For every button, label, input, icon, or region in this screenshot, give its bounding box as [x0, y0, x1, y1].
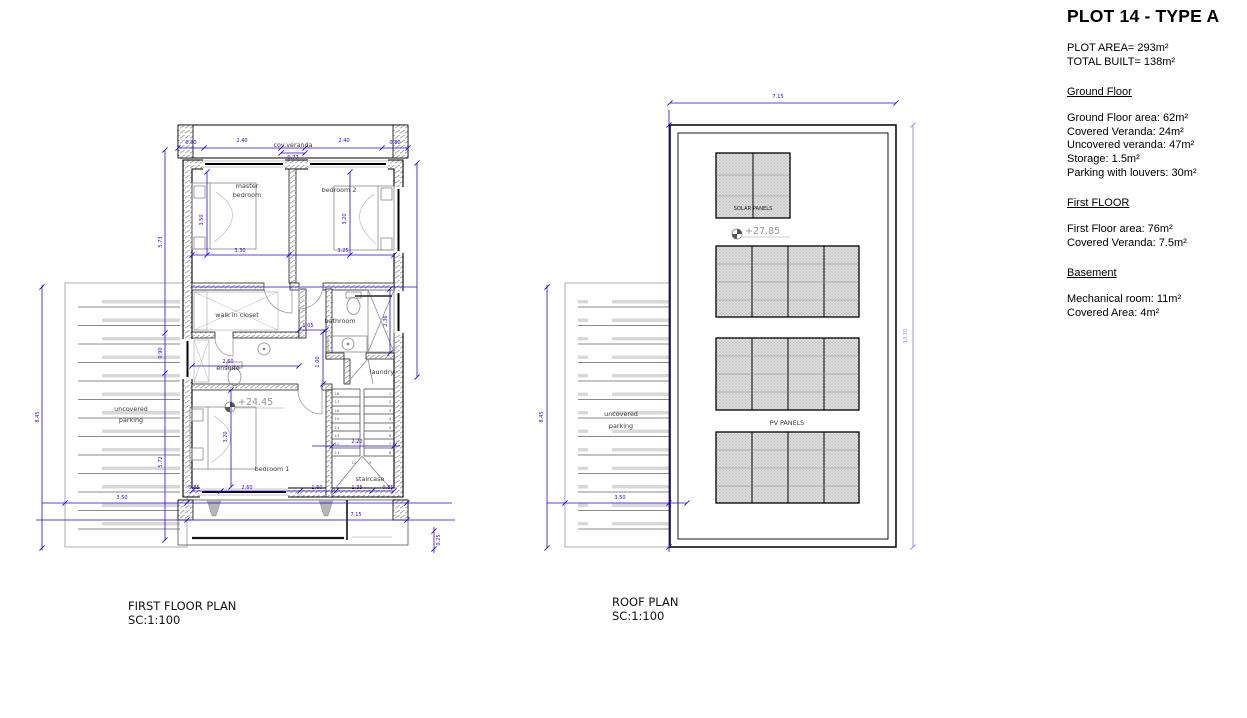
ffp-level-marker: +24.45: [225, 397, 284, 412]
heading-first-floor: First FLOOR: [1067, 197, 1245, 209]
label-bedroom-1: bedroom 1: [255, 465, 290, 473]
plans-canvas: uncovered parking cov.veranda: [0, 0, 1040, 718]
svg-text:2.60: 2.60: [241, 485, 252, 491]
ground-floor-area: Ground Floor area: 62m²: [1067, 112, 1245, 126]
drawing-sheet: uncovered parking cov.veranda: [0, 0, 1247, 718]
svg-text:0.85: 0.85: [188, 485, 199, 491]
svg-text:2.40: 2.40: [236, 138, 247, 144]
svg-text:3.50: 3.50: [614, 495, 625, 501]
first-floor-area: First Floor area: 76m²: [1067, 223, 1245, 237]
svg-text:3.25: 3.25: [337, 248, 348, 254]
pv-panels-label: PV PANELS: [770, 419, 805, 427]
ffp-stair-numbers: 18 17 16 15 14 13 12 11 1 2 3 4 5 6 7 8 …: [335, 392, 392, 465]
svg-text:16: 16: [335, 409, 340, 413]
mechanical-room: Mechanical room: 11m²: [1067, 293, 1245, 307]
svg-text:8: 8: [389, 451, 392, 455]
ffp-uncovered-parking: uncovered parking: [65, 283, 187, 547]
section-first-floor: First FLOOR First Floor area: 76m² Cover…: [1067, 197, 1245, 250]
solar-panels-label: SOLAR PANELS: [734, 206, 773, 212]
label-bathroom: bathroom: [324, 317, 355, 325]
svg-text:13: 13: [335, 434, 340, 438]
svg-text:3.50: 3.50: [116, 495, 127, 501]
svg-text:2: 2: [389, 400, 391, 404]
label-bedroom-2: bedroom 2: [322, 186, 357, 194]
label-laundry: laundry: [370, 368, 394, 376]
label-staircase: staircase: [356, 475, 385, 483]
label-ensuite: ensuite: [216, 364, 240, 372]
svg-text:8.45: 8.45: [35, 411, 41, 422]
svg-text:3: 3: [389, 409, 392, 413]
svg-text:0.85: 0.85: [382, 485, 393, 491]
ffp-bottom-veranda: [178, 500, 408, 545]
parking-with-louvers: Parking with louvers: 30m²: [1067, 167, 1245, 181]
svg-text:0.80: 0.80: [389, 140, 400, 146]
heading-basement: Basement: [1067, 267, 1245, 279]
svg-text:15: 15: [335, 417, 340, 421]
svg-text:1.00: 1.00: [315, 356, 321, 367]
svg-text:5: 5: [389, 426, 392, 430]
svg-text:1: 1: [389, 392, 391, 396]
svg-text:5.73: 5.73: [158, 236, 164, 247]
svg-text:3.20: 3.20: [223, 431, 229, 442]
plot-area: PLOT AREA= 293m²: [1067, 42, 1245, 56]
covered-veranda: Covered Veranda: 24m²: [1067, 126, 1245, 140]
svg-text:8.45: 8.45: [539, 411, 545, 422]
roof-scale: SC:1:100: [612, 609, 664, 623]
roof-title: ROOF PLAN: [612, 595, 678, 609]
svg-text:7: 7: [389, 442, 392, 446]
svg-text:3.20: 3.20: [342, 213, 348, 224]
total-built: TOTAL BUILT= 138m²: [1067, 56, 1245, 70]
ffp-downspout-right: [319, 500, 333, 516]
heading-ground-floor: Ground Floor: [1067, 86, 1245, 98]
first-covered-veranda: Covered Veranda: 7.5m²: [1067, 237, 1245, 251]
svg-text:11: 11: [335, 451, 340, 455]
plan-titles: FIRST FLOOR PLAN SC:1:100 ROOF PLAN SC:1…: [128, 595, 678, 627]
svg-text:3.30: 3.30: [234, 248, 245, 254]
plot-title: PLOT 14 - TYPE A: [1067, 6, 1245, 27]
svg-text:3.50: 3.50: [199, 214, 205, 225]
svg-text:10: 10: [352, 461, 357, 465]
svg-text:9: 9: [369, 461, 372, 465]
svg-text:1.05: 1.05: [302, 323, 313, 329]
roof-parking-label-2: parking: [609, 422, 633, 430]
roof-level-text: +27.85: [745, 226, 780, 237]
svg-text:1.35: 1.35: [351, 485, 362, 491]
svg-text:17: 17: [335, 400, 340, 404]
svg-text:5.72: 5.72: [158, 456, 164, 467]
svg-text:7.15: 7.15: [772, 94, 783, 100]
storage: Storage: 1.5m²: [1067, 153, 1245, 167]
ffp-parking-label-2: parking: [119, 416, 143, 424]
section-basement: Basement Mechanical room: 11m² Covered A…: [1067, 267, 1245, 320]
svg-text:1.60: 1.60: [311, 485, 322, 491]
svg-text:0.90: 0.90: [158, 347, 164, 358]
ffp-title: FIRST FLOOR PLAN: [128, 599, 236, 613]
ffp-scale: SC:1:100: [128, 613, 180, 627]
svg-text:13.70: 13.70: [903, 329, 909, 343]
svg-text:6: 6: [389, 434, 392, 438]
label-walk-in-closet: walk in closet: [215, 311, 259, 319]
svg-text:7.15: 7.15: [350, 512, 361, 518]
first-floor-plan: uncovered parking cov.veranda: [35, 125, 455, 553]
label-master-bedroom: master: [236, 182, 259, 190]
svg-text:12: 12: [335, 442, 340, 446]
roof-parking-label-1: uncovered: [604, 410, 638, 418]
svg-text:2.20: 2.20: [351, 439, 362, 445]
svg-text:0.77: 0.77: [287, 155, 298, 161]
roof-plan: uncovered parking SOLAR PANELS PV PANELS: [539, 94, 916, 552]
uncovered-veranda: Uncovered veranda: 47m²: [1067, 139, 1245, 153]
basement-covered-area: Covered Area: 4m²: [1067, 307, 1245, 321]
section-ground-floor: Ground Floor Ground Floor area: 62m² Cov…: [1067, 86, 1245, 180]
info-panel: PLOT 14 - TYPE A PLOT AREA= 293m² TOTAL …: [1067, 6, 1245, 321]
svg-text:18: 18: [335, 392, 340, 396]
ffp-level-text: +24.45: [238, 397, 273, 408]
svg-text:0.80: 0.80: [185, 140, 196, 146]
svg-text:0.25: 0.25: [436, 534, 442, 545]
svg-text:2.36: 2.36: [383, 315, 389, 326]
svg-text:14: 14: [335, 426, 340, 430]
svg-text:bedroom: bedroom: [233, 191, 262, 199]
svg-text:4: 4: [389, 417, 392, 421]
ffp-parking-label-1: uncovered: [114, 405, 148, 413]
svg-text:2.40: 2.40: [338, 138, 349, 144]
ffp-downspout-left: [207, 500, 221, 516]
